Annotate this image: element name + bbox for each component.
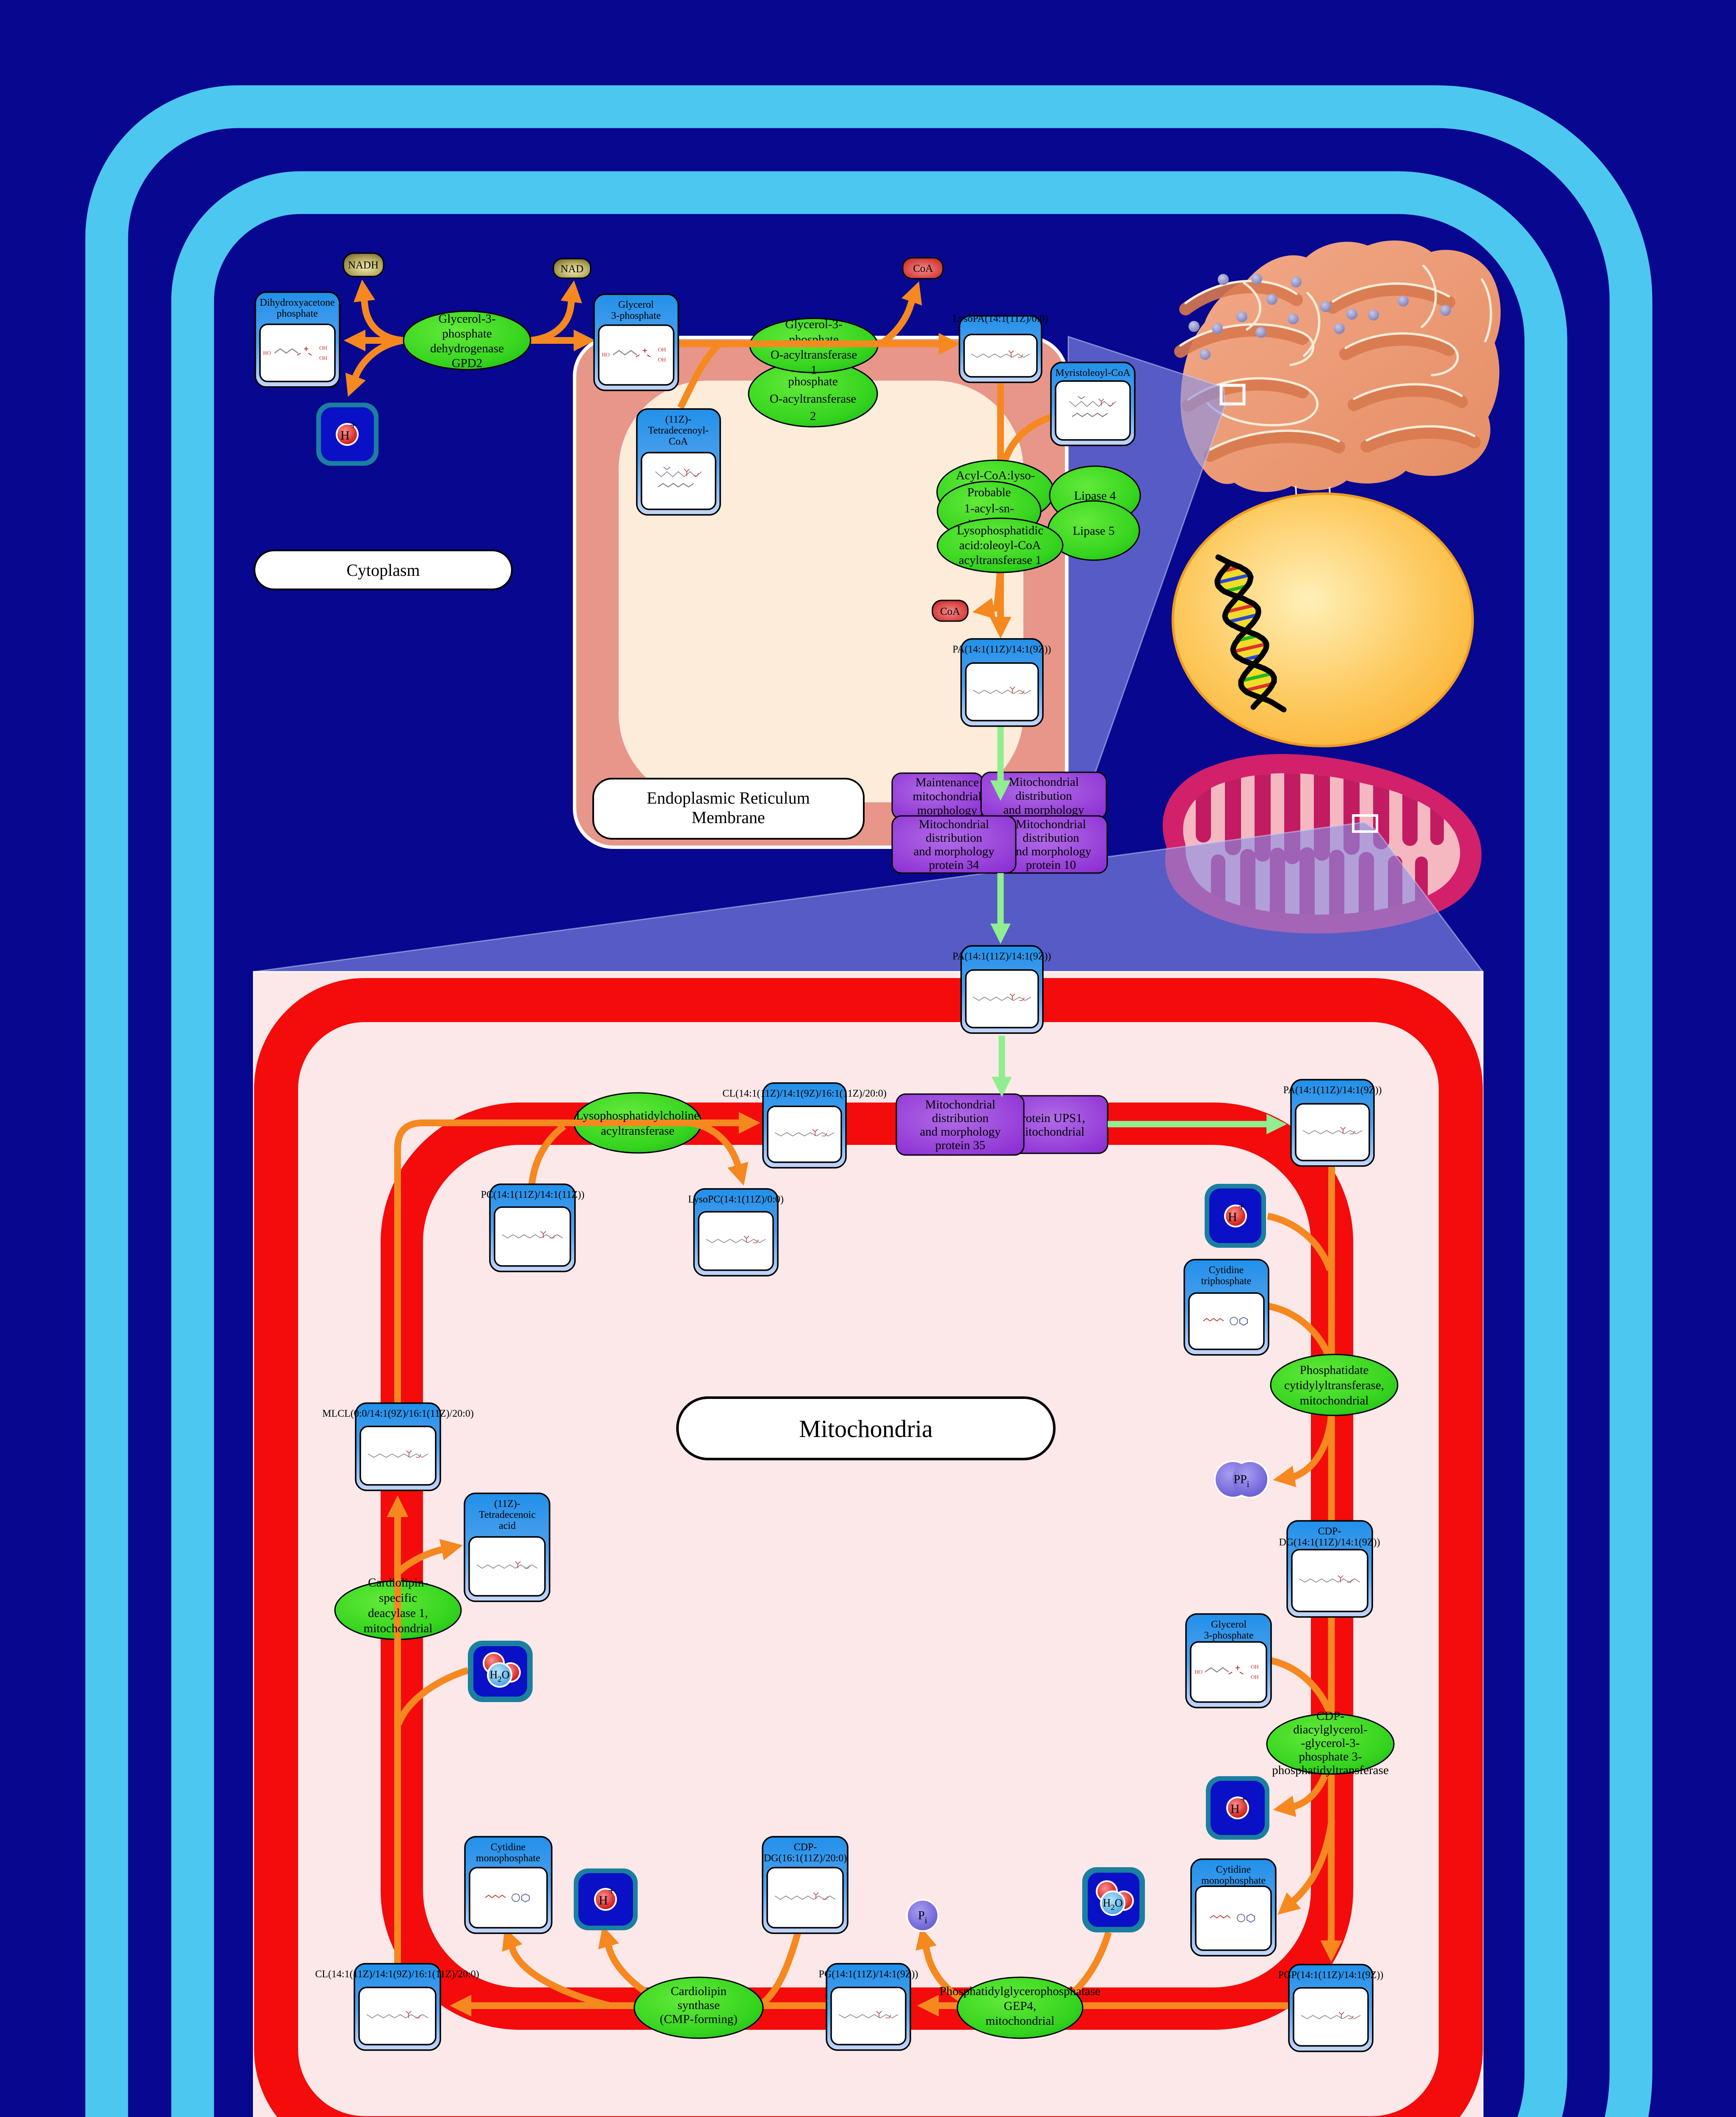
svg-text:Glycerol-3-: Glycerol-3- <box>785 318 842 331</box>
svg-text:Mitochondrial: Mitochondrial <box>925 1098 995 1111</box>
svg-text:mitochondrial: mitochondrial <box>1300 1394 1369 1407</box>
svg-text:GEP4,: GEP4, <box>1004 1999 1037 2013</box>
svg-text:NADH: NADH <box>348 260 379 271</box>
svg-text:distribution: distribution <box>926 831 982 845</box>
svg-text:CoA: CoA <box>913 263 933 274</box>
svg-text:and morphology: and morphology <box>1011 845 1092 858</box>
svg-text:diacylglycerol-: diacylglycerol- <box>1293 1723 1368 1736</box>
svg-text:PA(14:1(11Z)/14:1(9Z)): PA(14:1(11Z)/14:1(9Z)) <box>953 951 1051 962</box>
svg-text:Dihydroxyacetone: Dihydroxyacetone <box>260 297 334 308</box>
svg-text:Mitochondria: Mitochondria <box>799 1415 933 1443</box>
svg-text:LysoPA(14:1(11Z)/0:0): LysoPA(14:1(11Z)/0:0) <box>953 313 1048 324</box>
svg-text:monophosphate: monophosphate <box>476 1853 540 1864</box>
svg-text:GPD2: GPD2 <box>452 357 483 370</box>
svg-text:phosphate: phosphate <box>788 375 838 388</box>
svg-text:CDP-: CDP- <box>794 1842 817 1853</box>
svg-text:acid: acid <box>499 1520 516 1531</box>
svg-text:OH: OH <box>1251 1674 1259 1680</box>
svg-text:Mitochondrial: Mitochondrial <box>1009 775 1079 789</box>
svg-text:2: 2 <box>810 409 816 423</box>
svg-text:Cardiolipin-: Cardiolipin- <box>368 1576 428 1589</box>
svg-text:deacylase 1,: deacylase 1, <box>368 1606 428 1620</box>
svg-text:OH: OH <box>658 357 666 363</box>
svg-text:Cardiolipin: Cardiolipin <box>671 1984 727 1998</box>
svg-text:DG(14:1(11Z)/14:1(9Z)): DG(14:1(11Z)/14:1(9Z)) <box>1279 1537 1380 1548</box>
svg-text:Glycerol: Glycerol <box>618 299 654 310</box>
svg-text:Cytidine: Cytidine <box>1209 1265 1244 1276</box>
svg-text:protein 10: protein 10 <box>1026 858 1076 872</box>
svg-text:LysoPC(14:1(11Z)/0:0): LysoPC(14:1(11Z)/0:0) <box>688 1194 784 1205</box>
svg-text:Lysophosphatidylcholine: Lysophosphatidylcholine <box>576 1109 699 1122</box>
svg-text:monophosphate: monophosphate <box>1201 1875 1266 1886</box>
svg-text:OH: OH <box>1251 1664 1259 1670</box>
svg-text:acyltransferase 1: acyltransferase 1 <box>959 553 1042 567</box>
svg-text:phosphate: phosphate <box>276 308 318 319</box>
svg-text:mitochondrial: mitochondrial <box>1016 1125 1085 1139</box>
svg-text:Mitochondrial: Mitochondrial <box>1016 818 1086 831</box>
svg-text:OH: OH <box>319 355 327 361</box>
svg-text:PGP(14:1(11Z)/14:1(9Z)): PGP(14:1(11Z)/14:1(9Z)) <box>1278 1970 1383 1981</box>
svg-text:1-acyl-sn-: 1-acyl-sn- <box>964 502 1014 515</box>
svg-text:PA(14:1(11Z)/14:1(9Z)): PA(14:1(11Z)/14:1(9Z)) <box>1283 1085 1382 1096</box>
svg-text:and morphology: and morphology <box>920 1125 1001 1139</box>
svg-text:3-phosphate: 3-phosphate <box>611 310 661 321</box>
svg-text:mitochondrial: mitochondrial <box>364 1622 433 1635</box>
svg-text:PC(14:1(11Z)/14:1(11Z)): PC(14:1(11Z)/14:1(11Z)) <box>481 1189 585 1200</box>
svg-text:Lipase 5: Lipase 5 <box>1073 524 1114 538</box>
svg-text:(CMP-forming): (CMP-forming) <box>660 2012 738 2026</box>
svg-text:H: H <box>1228 1210 1237 1224</box>
svg-text:phosphate 3-: phosphate 3- <box>1299 1750 1362 1763</box>
svg-text:distribution: distribution <box>1015 789 1072 803</box>
svg-text:Membrane: Membrane <box>691 808 765 827</box>
svg-text:O-acyltransferase: O-acyltransferase <box>771 348 857 362</box>
svg-text:+: + <box>1240 1792 1247 1806</box>
svg-text:H: H <box>1230 1802 1240 1816</box>
svg-text:Cytidine: Cytidine <box>1216 1864 1251 1875</box>
svg-text:DG(16:1(11Z)/20:0): DG(16:1(11Z)/20:0) <box>764 1853 847 1864</box>
svg-text:phosphatidyltransferase: phosphatidyltransferase <box>1272 1763 1388 1777</box>
svg-text:-glycerol-3-: -glycerol-3- <box>1301 1736 1360 1750</box>
svg-text:Probable: Probable <box>967 486 1011 499</box>
svg-text:Endoplasmic Reticulum: Endoplasmic Reticulum <box>647 788 810 807</box>
svg-text:Maintenance: Maintenance <box>915 776 979 789</box>
svg-text:CL(14:1(11Z)/14:1(9Z)/16:1(11Z: CL(14:1(11Z)/14:1(9Z)/16:1(11Z)/20:0) <box>315 1969 479 1980</box>
svg-text:H: H <box>340 428 350 442</box>
svg-text:Lysophosphatidic: Lysophosphatidic <box>957 524 1044 537</box>
svg-text:Tetradecenoyl-: Tetradecenoyl- <box>648 425 709 436</box>
svg-text:HO: HO <box>602 351 610 358</box>
svg-text:acyltransferase: acyltransferase <box>601 1124 674 1138</box>
svg-text:phosphate: phosphate <box>442 327 492 340</box>
svg-text:MLCL(0:0/14:1(9Z)/16:1(11Z)/20: MLCL(0:0/14:1(9Z)/16:1(11Z)/20:0) <box>322 1408 474 1419</box>
svg-text:cytidylyltransferase,: cytidylyltransferase, <box>1284 1379 1384 1392</box>
svg-text:Phosphatidylglycerophosphatase: Phosphatidylglycerophosphatase <box>940 1984 1100 1998</box>
svg-text:OH: OH <box>319 345 327 351</box>
svg-text:(11Z)-: (11Z)- <box>494 1498 520 1509</box>
svg-text:CoA: CoA <box>940 606 960 617</box>
svg-text:CoA: CoA <box>669 436 688 447</box>
svg-text:Protein UPS1,: Protein UPS1, <box>1015 1111 1085 1125</box>
svg-text:morphology: morphology <box>917 804 977 817</box>
svg-text:triphosphate: triphosphate <box>1201 1276 1252 1287</box>
svg-text:+: + <box>1238 1200 1245 1214</box>
svg-text:OH: OH <box>658 346 666 353</box>
svg-text:Glycerol: Glycerol <box>1211 1619 1247 1630</box>
svg-text:3-phosphate: 3-phosphate <box>1204 1630 1253 1641</box>
svg-text:protein 34: protein 34 <box>929 858 979 872</box>
svg-text:HO: HO <box>263 350 271 356</box>
svg-text:dehydrogenase: dehydrogenase <box>430 342 504 355</box>
svg-text:CDP-: CDP- <box>1318 1526 1341 1537</box>
svg-text:PG(14:1(11Z)/14:1(9Z)): PG(14:1(11Z)/14:1(9Z)) <box>818 1969 918 1980</box>
svg-text:NAD: NAD <box>561 263 583 275</box>
svg-text:Myristoleoyl-CoA: Myristoleoyl-CoA <box>1055 368 1131 379</box>
svg-text:O-acyltransferase: O-acyltransferase <box>770 392 857 406</box>
svg-text:+: + <box>350 418 357 432</box>
svg-text:PA(14:1(11Z)/14:1(9Z)): PA(14:1(11Z)/14:1(9Z)) <box>953 644 1051 655</box>
svg-text:CL(14:1(11Z)/14:1(9Z)/16:1(11Z: CL(14:1(11Z)/14:1(9Z)/16:1(11Z)/20:0) <box>722 1088 886 1099</box>
svg-text:H: H <box>599 1893 608 1907</box>
svg-text:distribution: distribution <box>1023 831 1079 845</box>
svg-text:+: + <box>608 1884 615 1898</box>
svg-text:mitochondrial: mitochondrial <box>913 790 982 803</box>
svg-text:protein 35: protein 35 <box>935 1139 985 1152</box>
svg-text:Acyl-CoA:lyso-: Acyl-CoA:lyso- <box>956 469 1035 482</box>
svg-text:and morphology: and morphology <box>914 845 995 858</box>
svg-text:distribution: distribution <box>932 1111 989 1125</box>
svg-text:Mitochondrial: Mitochondrial <box>919 818 989 831</box>
svg-text:Glycerol-3-: Glycerol-3- <box>438 312 495 326</box>
svg-text:Tetradecenoic: Tetradecenoic <box>479 1509 536 1520</box>
svg-text:and morphology: and morphology <box>1003 803 1084 817</box>
svg-text:synthase: synthase <box>677 1998 720 2012</box>
svg-text:Cytidine: Cytidine <box>491 1842 526 1853</box>
svg-text:specific: specific <box>379 1591 417 1605</box>
svg-text:acid:oleoyl-CoA: acid:oleoyl-CoA <box>959 539 1041 552</box>
svg-text:Phosphatidate: Phosphatidate <box>1300 1363 1369 1377</box>
svg-text:mitochondrial: mitochondrial <box>986 2014 1055 2028</box>
svg-text:CDP-: CDP- <box>1316 1709 1344 1723</box>
svg-text:(11Z)-: (11Z)- <box>665 414 691 425</box>
svg-text:Cytoplasm: Cytoplasm <box>346 561 420 580</box>
svg-text:HO: HO <box>1194 1669 1202 1675</box>
